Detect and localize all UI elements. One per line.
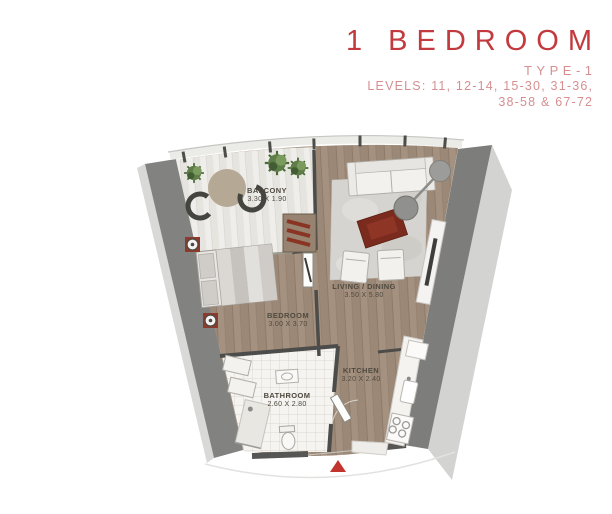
room-name: KITCHEN: [341, 366, 380, 375]
wardrobe-hangers: [283, 214, 316, 252]
room-label-kitchen: KITCHEN 3.20 X 2.40: [341, 366, 380, 384]
plan-levels-line2: 38-58 & 67-72: [346, 94, 593, 110]
room-dims: 3.50 X 5.80: [332, 291, 396, 300]
armchair: [377, 249, 405, 280]
room-dims: 3.20 X 2.40: [341, 375, 380, 384]
bed: [196, 244, 277, 308]
plan-header: 1 BEDROOM TYPE-1 LEVELS: 11, 12-14, 15-3…: [346, 26, 592, 110]
room-label-bathroom: BATHROOM 2.60 X 2.80: [264, 391, 311, 409]
nightstand-lamp: [203, 313, 218, 328]
armchair: [341, 251, 370, 284]
room-dims: 2.60 X 2.80: [264, 400, 311, 409]
bedroom-door: [303, 253, 313, 287]
room-name: BATHROOM: [264, 391, 311, 400]
nightstand-lamp: [185, 237, 200, 252]
plan-levels-line1: LEVELS: 11, 12-14, 15-30, 31-36,: [346, 78, 593, 94]
bottom-shell-arc: [205, 452, 455, 477]
room-label-bedroom: BEDROOM 3.00 X 3.70: [267, 311, 309, 329]
room-name: BEDROOM: [267, 311, 309, 320]
kitchen-lower-cabinet: [352, 441, 388, 455]
room-name: BALCONY: [247, 186, 287, 195]
room-dims: 3.00 X 3.70: [267, 320, 309, 329]
fridge: [406, 340, 429, 360]
floorplan-page: BALCONY 3.30 X 1.90 LIVING / DINING 3.50…: [0, 0, 612, 514]
room-label-living-dining: LIVING / DINING 3.50 X 5.80: [332, 282, 396, 300]
plan-type: TYPE-1: [346, 63, 597, 78]
entrance-arrow-icon: [330, 460, 346, 472]
vanity-sink: [276, 369, 299, 384]
room-label-balcony: BALCONY 3.30 X 1.90: [247, 186, 287, 204]
room-dims: 3.30 X 1.90: [247, 195, 287, 204]
room-name: LIVING / DINING: [332, 282, 396, 291]
plan-title: 1 BEDROOM: [346, 26, 601, 56]
